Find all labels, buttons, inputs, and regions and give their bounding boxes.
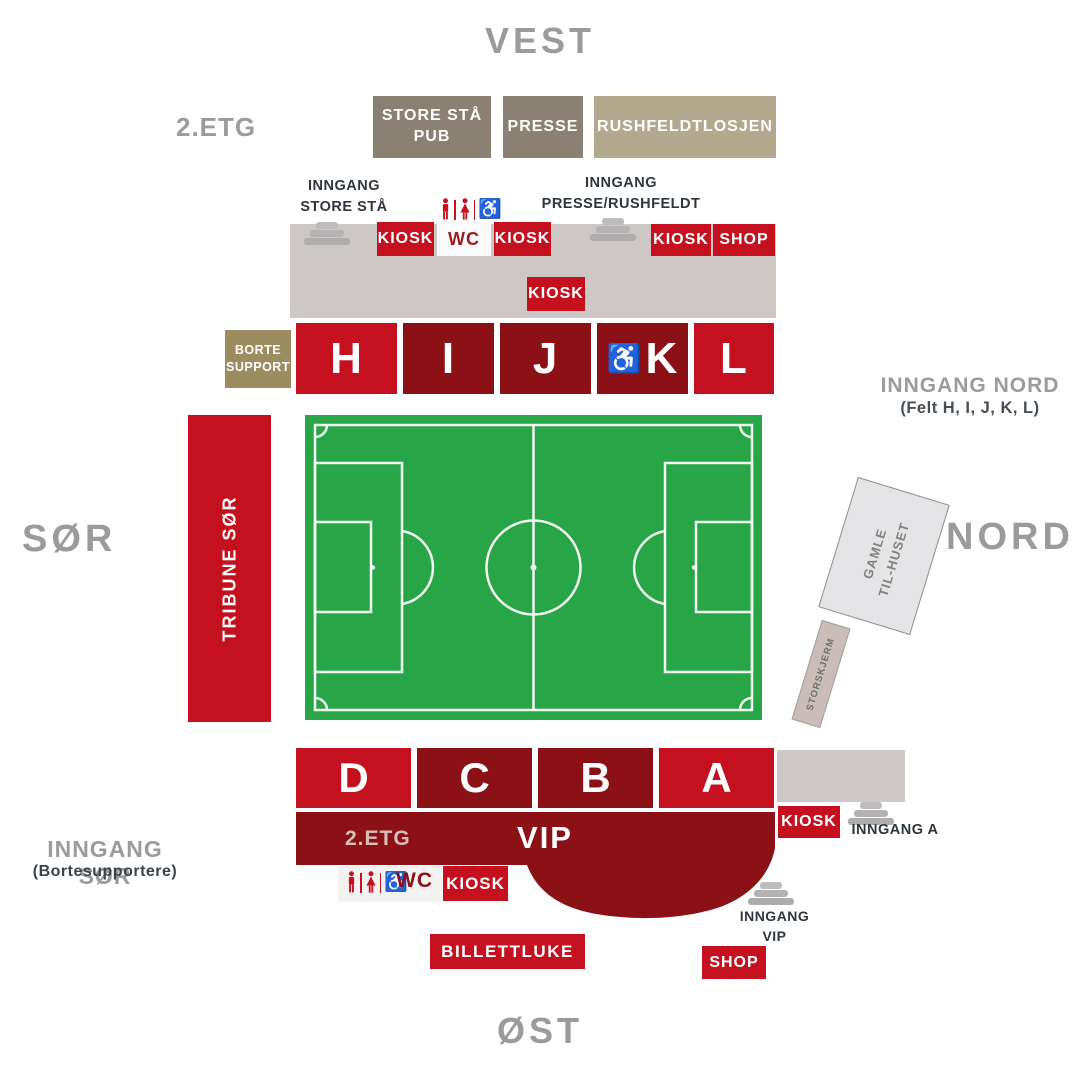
building-gamle-til-huset: GAMLE TIL-HUSET <box>818 477 950 635</box>
entrance-a-label: INNGANG A <box>840 822 950 838</box>
stairs-icon <box>590 218 636 241</box>
section-tribune-sor: TRIBUNE SØR <box>188 415 271 722</box>
storskjerm-label: STORSKJERM <box>805 636 838 712</box>
entrance-vip-label: INNGANG VIP <box>727 906 822 947</box>
kiosk-box: KIOSK <box>494 222 551 256</box>
kiosk-box: KIOSK <box>377 222 434 256</box>
woman-icon <box>365 871 377 893</box>
stand-k-label: K <box>646 334 679 384</box>
stand-c: C <box>417 748 532 808</box>
stand-a: A <box>659 748 774 808</box>
entrance-sor-sub: (Bortesupportere) <box>20 863 190 881</box>
compass-south: SØR <box>22 518 142 561</box>
compass-west: VEST <box>450 20 630 62</box>
stand-i: I <box>403 323 494 394</box>
stand-b: B <box>538 748 653 808</box>
billettluke-box: BILLETTLUKE <box>430 934 585 969</box>
wc-box: WC <box>437 222 491 256</box>
section-presse: PRESSE <box>503 96 583 158</box>
section-borte-support: BORTE SUPPORT <box>225 330 291 388</box>
kiosk-box: KIOSK <box>778 806 840 838</box>
wc-label: WC <box>396 869 433 893</box>
entrance-nord-title: INNGANG NORD <box>860 374 1080 398</box>
stairs-icon <box>748 882 794 905</box>
shop-box: SHOP <box>702 946 766 979</box>
vip-floor-label: 2.ETG <box>345 827 411 851</box>
shop-box: SHOP <box>713 224 775 256</box>
west-floor-label: 2.ETG <box>176 112 256 143</box>
kiosk-box: KIOSK <box>651 224 711 256</box>
stand-j: J <box>500 323 591 394</box>
entrance-store-staa-label: INNGANG STORE STÅ <box>264 176 424 218</box>
stadium-map: VEST ØST SØR NORD 2.ETG STORE STÅ PUB PR… <box>0 0 1080 1080</box>
stand-h: H <box>296 323 397 394</box>
wheelchair-icon: ♿ <box>478 200 502 220</box>
east-concourse <box>777 750 905 802</box>
gamle-til-huset-label: GAMLE TIL-HUSET <box>854 514 914 599</box>
wheelchair-icon: ♿ <box>607 342 642 375</box>
vip-label: VIP <box>485 820 605 856</box>
compass-north: NORD <box>946 516 1076 559</box>
stand-k: ♿ K <box>597 323 688 394</box>
big-screen-storskjerm: STORSKJERM <box>791 620 850 728</box>
restroom-icons: ♿ <box>440 198 502 220</box>
entrance-nord-sub: (Felt H, I, J, K, L) <box>860 399 1080 418</box>
entrance-presse-label: INNGANG PRESSE/RUSHFELDT <box>531 173 711 215</box>
section-store-staa-pub: STORE STÅ PUB <box>373 96 491 158</box>
stand-l: L <box>694 323 774 394</box>
section-rushfeldtlosjen: RUSHFELDTLOSJEN <box>594 96 776 158</box>
compass-east: ØST <box>460 1010 620 1052</box>
man-icon <box>440 198 451 220</box>
woman-icon <box>459 198 471 220</box>
stand-d: D <box>296 748 411 808</box>
tribune-sor-label: TRIBUNE SØR <box>219 495 240 641</box>
football-pitch <box>305 415 762 720</box>
kiosk-box: KIOSK <box>443 866 508 901</box>
kiosk-box: KIOSK <box>527 277 585 311</box>
stairs-icon <box>304 222 350 245</box>
man-icon <box>346 871 357 893</box>
